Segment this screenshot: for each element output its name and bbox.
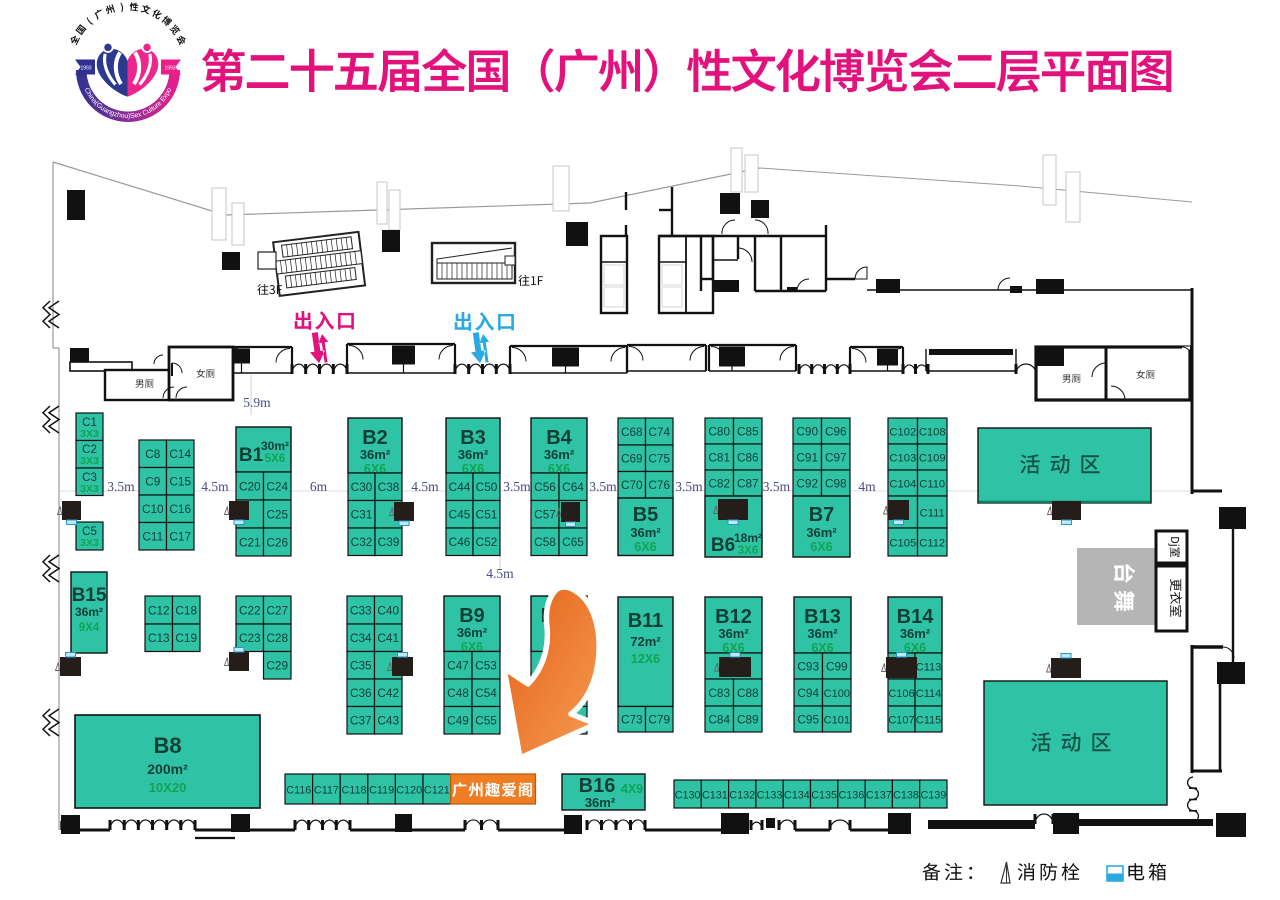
svg-text:3X3: 3X3 [80, 483, 99, 495]
svg-text:C44: C44 [449, 480, 471, 494]
svg-text:C27: C27 [266, 603, 288, 617]
svg-text:C95: C95 [797, 712, 819, 726]
svg-text:C23: C23 [239, 631, 261, 645]
svg-text:C70: C70 [621, 478, 643, 492]
svg-text:1993: 1993 [80, 66, 91, 72]
svg-text:C53: C53 [475, 659, 497, 673]
svg-text:C49: C49 [447, 714, 469, 728]
svg-text:C105: C105 [889, 537, 916, 549]
svg-text:C51: C51 [476, 508, 498, 522]
svg-text:C16: C16 [169, 502, 191, 516]
svg-text:3.5m: 3.5m [107, 479, 135, 494]
svg-text:C50: C50 [476, 480, 498, 494]
svg-text:C40: C40 [377, 603, 399, 617]
svg-text:C99: C99 [826, 659, 848, 673]
svg-text:C47: C47 [447, 659, 469, 673]
svg-text:C114: C114 [916, 688, 941, 700]
svg-text:C111: C111 [920, 507, 945, 519]
svg-text:36m²: 36m² [360, 447, 391, 462]
svg-text:5X6: 5X6 [265, 453, 285, 465]
svg-text:36m²: 36m² [630, 525, 661, 540]
svg-text:36m²: 36m² [75, 605, 103, 619]
svg-text:C133: C133 [757, 789, 783, 801]
svg-text:C87: C87 [737, 476, 759, 490]
svg-text:C121: C121 [424, 784, 450, 796]
svg-text:C113: C113 [916, 661, 941, 673]
svg-text:B12: B12 [715, 606, 752, 628]
svg-text:C65: C65 [562, 535, 584, 549]
svg-text:C48: C48 [447, 686, 469, 700]
svg-text:B4: B4 [546, 427, 572, 449]
svg-text:C43: C43 [377, 714, 399, 728]
svg-text:C57: C57 [534, 508, 556, 522]
svg-text:4.5m: 4.5m [201, 479, 229, 494]
svg-text:B6: B6 [711, 535, 735, 556]
svg-text:C20: C20 [239, 479, 261, 493]
svg-text:C96: C96 [825, 424, 847, 438]
svg-text:C86: C86 [737, 450, 759, 464]
svg-text:C130: C130 [675, 789, 701, 801]
svg-text:C73: C73 [621, 713, 643, 727]
svg-text:C35: C35 [350, 659, 372, 673]
svg-text:C118: C118 [341, 784, 366, 796]
svg-text:B11: B11 [628, 610, 664, 632]
svg-text:C132: C132 [729, 789, 755, 801]
svg-text:B8: B8 [153, 733, 181, 758]
svg-text:36m²: 36m² [807, 626, 838, 641]
svg-text:C33: C33 [350, 603, 372, 617]
svg-text:C17: C17 [169, 530, 191, 544]
svg-text:C120: C120 [396, 784, 422, 796]
svg-text:C80: C80 [708, 424, 730, 438]
svg-text:B14: B14 [897, 606, 935, 628]
svg-text:6m: 6m [310, 479, 328, 494]
svg-text:C139: C139 [920, 789, 946, 801]
svg-text:3X3: 3X3 [80, 537, 99, 549]
svg-text:C22: C22 [239, 603, 261, 617]
svg-text:C88: C88 [737, 686, 759, 700]
svg-text:36m²: 36m² [900, 626, 931, 641]
svg-text:36m²: 36m² [544, 447, 575, 462]
svg-text:B5: B5 [633, 504, 659, 526]
svg-text:C107: C107 [888, 714, 914, 726]
svg-text:C104: C104 [889, 478, 916, 490]
svg-text:C29: C29 [266, 659, 288, 673]
svg-text:36m²: 36m² [718, 626, 749, 641]
svg-text:C18: C18 [175, 603, 197, 617]
svg-text:C8: C8 [145, 447, 161, 461]
svg-text:3.5m: 3.5m [763, 479, 791, 494]
svg-text:C31: C31 [351, 508, 373, 522]
svg-text:C102: C102 [889, 426, 916, 438]
svg-text:C55: C55 [475, 714, 497, 728]
svg-text:C12: C12 [148, 603, 170, 617]
svg-text:B1: B1 [239, 445, 264, 466]
svg-text:C56: C56 [534, 480, 556, 494]
svg-text:C97: C97 [825, 450, 847, 464]
svg-text:C91: C91 [796, 450, 818, 464]
svg-text:4X9: 4X9 [621, 782, 643, 796]
svg-text:4.5m: 4.5m [486, 566, 514, 581]
svg-text:C81: C81 [708, 450, 730, 464]
svg-text:C83: C83 [708, 686, 730, 700]
svg-text:C28: C28 [266, 631, 288, 645]
svg-text:C94: C94 [797, 686, 819, 700]
svg-text:4m: 4m [858, 479, 876, 494]
svg-text:C90: C90 [796, 424, 818, 438]
svg-text:6X6: 6X6 [810, 540, 832, 554]
svg-text:3.5m: 3.5m [503, 479, 531, 494]
svg-text:C36: C36 [350, 686, 372, 700]
svg-text:C136: C136 [838, 789, 864, 801]
svg-text:C41: C41 [377, 631, 399, 645]
svg-text:200m²: 200m² [147, 761, 188, 777]
svg-text:C119: C119 [369, 784, 394, 796]
svg-text:10X20: 10X20 [149, 780, 187, 795]
svg-text:C101: C101 [824, 714, 850, 726]
svg-text:C24: C24 [266, 479, 288, 493]
svg-text:36m²: 36m² [806, 525, 837, 540]
svg-text:36m²: 36m² [457, 625, 488, 640]
svg-text:C32: C32 [351, 535, 373, 549]
svg-text:C69: C69 [621, 452, 643, 466]
svg-text:C131: C131 [702, 789, 728, 801]
svg-text:B2: B2 [362, 427, 388, 449]
svg-text:C103: C103 [889, 452, 916, 464]
svg-text:C110: C110 [919, 478, 945, 490]
svg-text:1993: 1993 [164, 66, 175, 72]
svg-text:12X6: 12X6 [631, 652, 660, 666]
svg-text:C93: C93 [797, 659, 819, 673]
svg-text:B15: B15 [72, 585, 107, 606]
svg-text:C10: C10 [142, 502, 164, 516]
svg-text:B9: B9 [459, 605, 485, 627]
svg-text:C85: C85 [737, 424, 759, 438]
svg-text:C79: C79 [648, 713, 670, 727]
svg-text:3X6: 3X6 [738, 545, 758, 557]
svg-text:6X6: 6X6 [634, 540, 656, 554]
svg-text:C38: C38 [378, 480, 400, 494]
svg-text:C112: C112 [919, 537, 945, 549]
svg-text:C82: C82 [708, 476, 730, 490]
svg-text:C26: C26 [266, 535, 288, 549]
svg-text:C135: C135 [811, 789, 837, 801]
svg-text:3X3: 3X3 [80, 455, 99, 467]
svg-text:9X4: 9X4 [79, 622, 100, 634]
svg-text:C108: C108 [919, 426, 946, 438]
svg-text:C13: C13 [148, 631, 170, 645]
svg-text:4.5m: 4.5m [411, 479, 439, 494]
svg-text:C92: C92 [796, 476, 818, 490]
svg-text:C30: C30 [351, 480, 373, 494]
svg-text:C84: C84 [708, 712, 730, 726]
svg-text:C89: C89 [737, 712, 759, 726]
svg-text:5.9m: 5.9m [243, 395, 271, 410]
svg-text:3X3: 3X3 [80, 428, 99, 440]
svg-text:C54: C54 [475, 686, 497, 700]
svg-text:C15: C15 [169, 475, 191, 489]
svg-text:C14: C14 [169, 447, 191, 461]
svg-text:3.5m: 3.5m [589, 479, 617, 494]
svg-text:18m²: 18m² [734, 531, 762, 545]
svg-text:C25: C25 [266, 507, 288, 521]
svg-text:36m²: 36m² [458, 447, 489, 462]
svg-text:C137: C137 [866, 789, 892, 801]
svg-text:C9: C9 [145, 475, 160, 489]
svg-text:C138: C138 [893, 789, 919, 801]
svg-text:C116: C116 [286, 784, 311, 796]
svg-text:C98: C98 [825, 476, 847, 490]
svg-text:C109: C109 [919, 452, 946, 464]
svg-text:3.5m: 3.5m [675, 479, 703, 494]
svg-text:C42: C42 [377, 686, 399, 700]
svg-text:C134: C134 [784, 789, 810, 801]
svg-text:C19: C19 [175, 631, 197, 645]
svg-text:C45: C45 [449, 508, 471, 522]
svg-text:B3: B3 [460, 427, 486, 449]
svg-text:C106: C106 [888, 688, 914, 700]
svg-text:72m²: 72m² [630, 634, 661, 649]
svg-text:C68: C68 [621, 425, 643, 439]
svg-text:C115: C115 [916, 714, 941, 726]
svg-text:B16: B16 [579, 775, 616, 797]
svg-text:C117: C117 [314, 784, 339, 796]
svg-text:B7: B7 [809, 504, 835, 526]
svg-text:C11: C11 [142, 530, 163, 544]
svg-text:C76: C76 [648, 478, 670, 492]
svg-text:C39: C39 [378, 535, 400, 549]
svg-text:C37: C37 [350, 714, 372, 728]
svg-text:C64: C64 [562, 480, 584, 494]
svg-text:C46: C46 [449, 535, 471, 549]
svg-text:C100: C100 [824, 688, 850, 700]
svg-text:C58: C58 [534, 535, 556, 549]
svg-text:36m²: 36m² [585, 795, 616, 810]
svg-text:30m²: 30m² [261, 439, 289, 453]
svg-text:C52: C52 [476, 535, 498, 549]
svg-text:C21: C21 [239, 535, 261, 549]
svg-text:C34: C34 [350, 631, 372, 645]
svg-text:C75: C75 [648, 452, 670, 466]
svg-text:C74: C74 [648, 425, 670, 439]
svg-text:B13: B13 [804, 606, 841, 628]
